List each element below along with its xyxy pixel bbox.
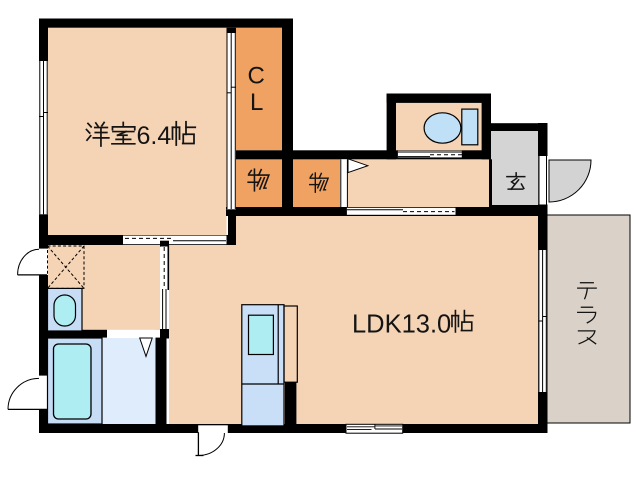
- svg-text:6.4: 6.4: [137, 122, 172, 150]
- svg-text:C: C: [248, 63, 265, 90]
- svg-text:L: L: [250, 89, 263, 116]
- svg-text:LDK13.0: LDK13.0: [352, 311, 451, 339]
